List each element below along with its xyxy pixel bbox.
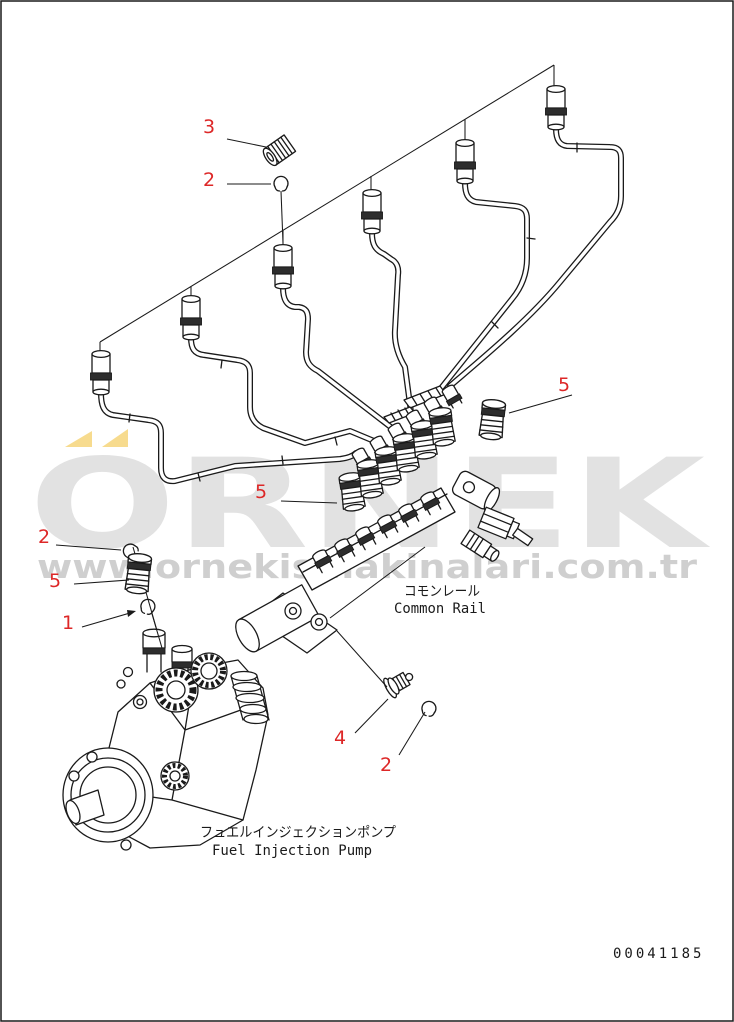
pipe-group-bracket-line	[100, 65, 554, 352]
pipe-fitting-6	[546, 86, 567, 130]
leader-arrowhead	[127, 610, 136, 617]
rail-end-boss	[231, 585, 319, 656]
drawing-number: 00041185	[613, 946, 704, 962]
common-rail-label-jp: コモンレール	[404, 584, 480, 600]
callout-2-left: 2	[38, 526, 50, 548]
callout-5-middle: 5	[255, 481, 267, 503]
exploded-clip-part2-top	[274, 176, 288, 191]
pipe-fitting-2	[181, 296, 202, 340]
pipe-fitting-4	[362, 190, 383, 234]
pipe-fitting-3	[273, 245, 294, 289]
callout-2-top: 2	[203, 169, 215, 191]
injection-pipes	[101, 129, 621, 481]
parts-diagram-page: ORNEK www.ornekismakinalari.com.tr	[0, 0, 734, 1022]
common-rail-label-en: Common Rail	[394, 601, 486, 617]
callout-5-left: 5	[49, 570, 61, 592]
injection-pipe-3	[283, 288, 392, 428]
fuel-injection-pump	[63, 547, 269, 850]
exploded-plug-part3	[261, 135, 296, 168]
exploded-sleeve-part5-right	[479, 399, 506, 441]
exploded-sleeve-part5-left	[125, 553, 152, 595]
pipe-fitting-5	[455, 140, 476, 184]
callout-4: 4	[334, 727, 346, 749]
pipe-fitting-1	[91, 351, 112, 395]
exploded-plug-part4	[382, 666, 418, 700]
callout-5-right: 5	[558, 374, 570, 396]
callout-3: 3	[203, 116, 215, 138]
fuel-injection-pump-label-jp: フュエルインジェクションポンプ	[200, 825, 396, 841]
callout-1: 1	[62, 612, 74, 634]
fuel-injection-pump-label-en: Fuel Injection Pump	[212, 843, 372, 859]
callout-2-bottom: 2	[380, 754, 392, 776]
